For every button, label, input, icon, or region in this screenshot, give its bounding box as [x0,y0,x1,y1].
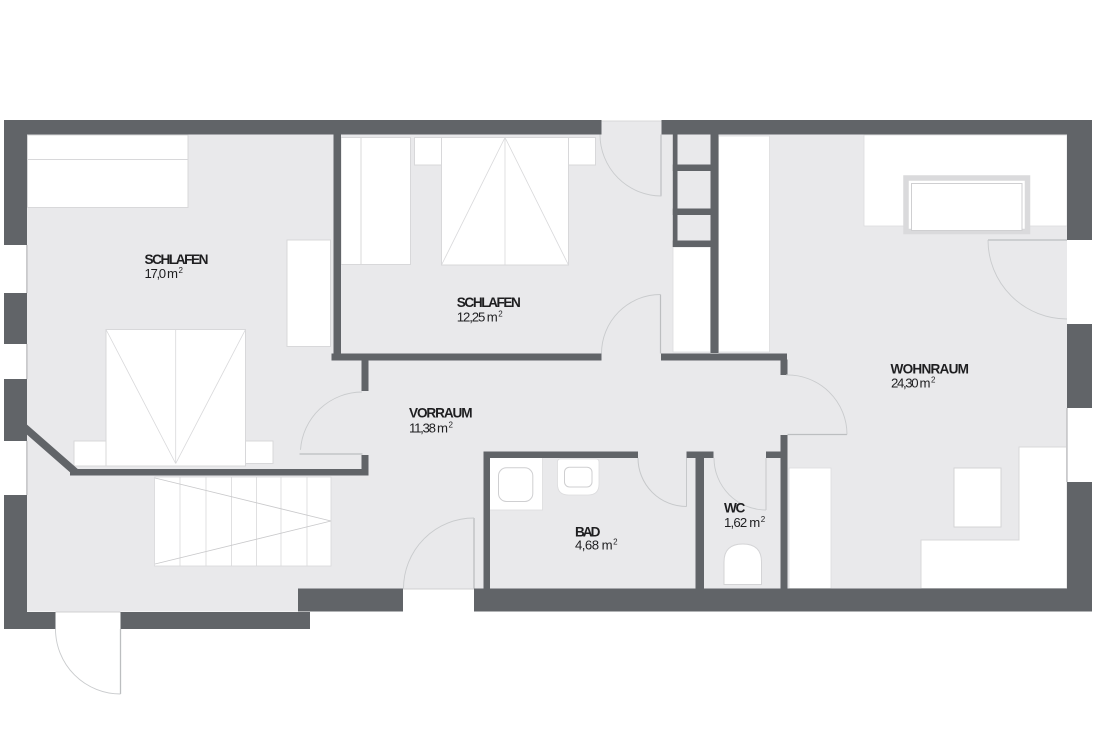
svg-text:SCHLAFEN: SCHLAFEN [145,252,209,267]
svg-text:1,62 m: 1,62 m [724,515,760,530]
svg-text:2: 2 [449,421,454,430]
svg-text:17,0 m: 17,0 m [145,266,179,281]
svg-text:4,68 m: 4,68 m [575,537,613,552]
svg-text:11,38 m: 11,38 m [409,421,448,436]
svg-text:24,30 m: 24,30 m [891,376,931,391]
svg-text:2: 2 [498,310,503,319]
svg-text:WOHNRAUM: WOHNRAUM [891,362,970,377]
svg-text:2: 2 [613,537,618,546]
svg-text:12,25 m: 12,25 m [457,310,498,325]
svg-text:2: 2 [761,515,766,524]
svg-text:2: 2 [179,266,184,275]
svg-text:2: 2 [931,376,936,385]
svg-text:SCHLAFEN: SCHLAFEN [457,295,521,310]
svg-text:WC: WC [724,501,745,516]
svg-text:VORRAUM: VORRAUM [409,406,473,421]
